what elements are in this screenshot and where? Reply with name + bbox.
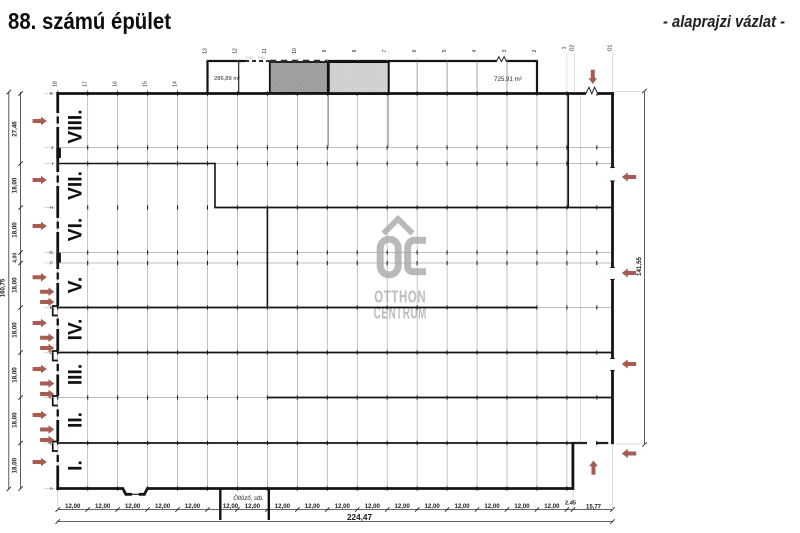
svg-text:18,00: 18,00 — [12, 322, 19, 338]
svg-text:2,40: 2,40 — [258, 56, 265, 60]
svg-text:15: 15 — [142, 81, 148, 87]
svg-text:18,00: 18,00 — [12, 457, 19, 473]
svg-text:11: 11 — [262, 48, 268, 53]
svg-text:12,00: 12,00 — [454, 503, 470, 510]
svg-text:17: 17 — [83, 81, 89, 87]
svg-text:VII.: VII. — [66, 171, 87, 200]
svg-text:I.: I. — [66, 460, 87, 471]
svg-text:12,00: 12,00 — [514, 503, 530, 510]
svg-text:12,00: 12,00 — [544, 503, 560, 510]
svg-text:V.: V. — [66, 277, 87, 293]
svg-text:O1: O1 — [607, 44, 613, 51]
svg-text:F: F — [50, 261, 53, 267]
svg-text:12,00: 12,00 — [155, 503, 171, 510]
svg-text:725,91 m²: 725,91 m² — [494, 76, 522, 83]
svg-text:8: 8 — [352, 49, 358, 52]
svg-text:5: 5 — [442, 49, 448, 52]
svg-text:E: E — [50, 305, 53, 311]
svg-text:12,00: 12,00 — [425, 503, 441, 510]
svg-text:1: 1 — [562, 46, 568, 49]
svg-text:141,55: 141,55 — [636, 256, 643, 275]
svg-text:Öltöző, stb.: Öltöző, stb. — [233, 495, 263, 502]
svg-text:27,46: 27,46 — [12, 121, 19, 137]
svg-text:G: G — [49, 250, 53, 256]
svg-text:10: 10 — [292, 48, 298, 54]
svg-text:4: 4 — [472, 49, 478, 52]
svg-text:12,00: 12,00 — [395, 503, 411, 510]
svg-text:18,00: 18,00 — [12, 277, 19, 293]
svg-text:7: 7 — [382, 49, 388, 52]
svg-text:I: I — [52, 161, 53, 167]
svg-text:18: 18 — [53, 81, 59, 87]
svg-text:4,00: 4,00 — [13, 253, 19, 263]
svg-text:- alaprajzi vázlat -: - alaprajzi vázlat - — [663, 13, 785, 31]
svg-text:224,47: 224,47 — [347, 513, 372, 522]
svg-text:3: 3 — [502, 49, 508, 52]
svg-text:9: 9 — [322, 49, 328, 52]
svg-text:12,00: 12,00 — [335, 503, 351, 510]
svg-text:18,00: 18,00 — [12, 412, 19, 428]
svg-text:12,00: 12,00 — [484, 503, 500, 510]
svg-text:2: 2 — [532, 49, 538, 52]
svg-text:15,77: 15,77 — [586, 505, 602, 511]
svg-text:12,00: 12,00 — [305, 503, 321, 510]
svg-text:12,00: 12,00 — [125, 503, 141, 510]
svg-text:18,00: 18,00 — [12, 367, 19, 383]
svg-text:VI.: VI. — [66, 218, 87, 241]
svg-text:286,89 m²: 286,89 m² — [214, 76, 240, 82]
svg-text:IV.: IV. — [66, 319, 87, 341]
svg-text:O2: O2 — [569, 44, 575, 51]
svg-text:12,00: 12,00 — [245, 503, 261, 510]
svg-text:VIII.: VIII. — [66, 109, 87, 143]
svg-text:18,00: 18,00 — [12, 177, 19, 193]
svg-text:12,00: 12,00 — [65, 503, 81, 510]
svg-text:18,00: 18,00 — [12, 222, 19, 238]
svg-text:160,75: 160,75 — [1, 278, 7, 297]
svg-text:6: 6 — [412, 49, 418, 52]
svg-text:12,00: 12,00 — [275, 503, 291, 510]
svg-text:88. számú épület: 88. számú épület — [8, 8, 171, 34]
svg-text:14: 14 — [172, 81, 178, 87]
svg-text:12,00: 12,00 — [95, 503, 111, 510]
svg-text:2,10: 2,10 — [246, 56, 253, 60]
svg-text:III.: III. — [66, 364, 87, 385]
svg-text:H: H — [50, 205, 54, 211]
svg-text:II.: II. — [66, 412, 87, 428]
svg-text:D: D — [50, 350, 54, 356]
svg-text:16: 16 — [112, 81, 118, 87]
svg-text:12,00: 12,00 — [185, 503, 201, 510]
svg-text:12: 12 — [232, 48, 238, 54]
svg-text:CENTRUM: CENTRUM — [374, 304, 427, 324]
svg-text:12,00: 12,00 — [365, 503, 381, 510]
svg-text:13: 13 — [202, 48, 208, 54]
svg-text:2,45: 2,45 — [565, 501, 576, 507]
svg-text:12,00: 12,00 — [223, 503, 239, 510]
